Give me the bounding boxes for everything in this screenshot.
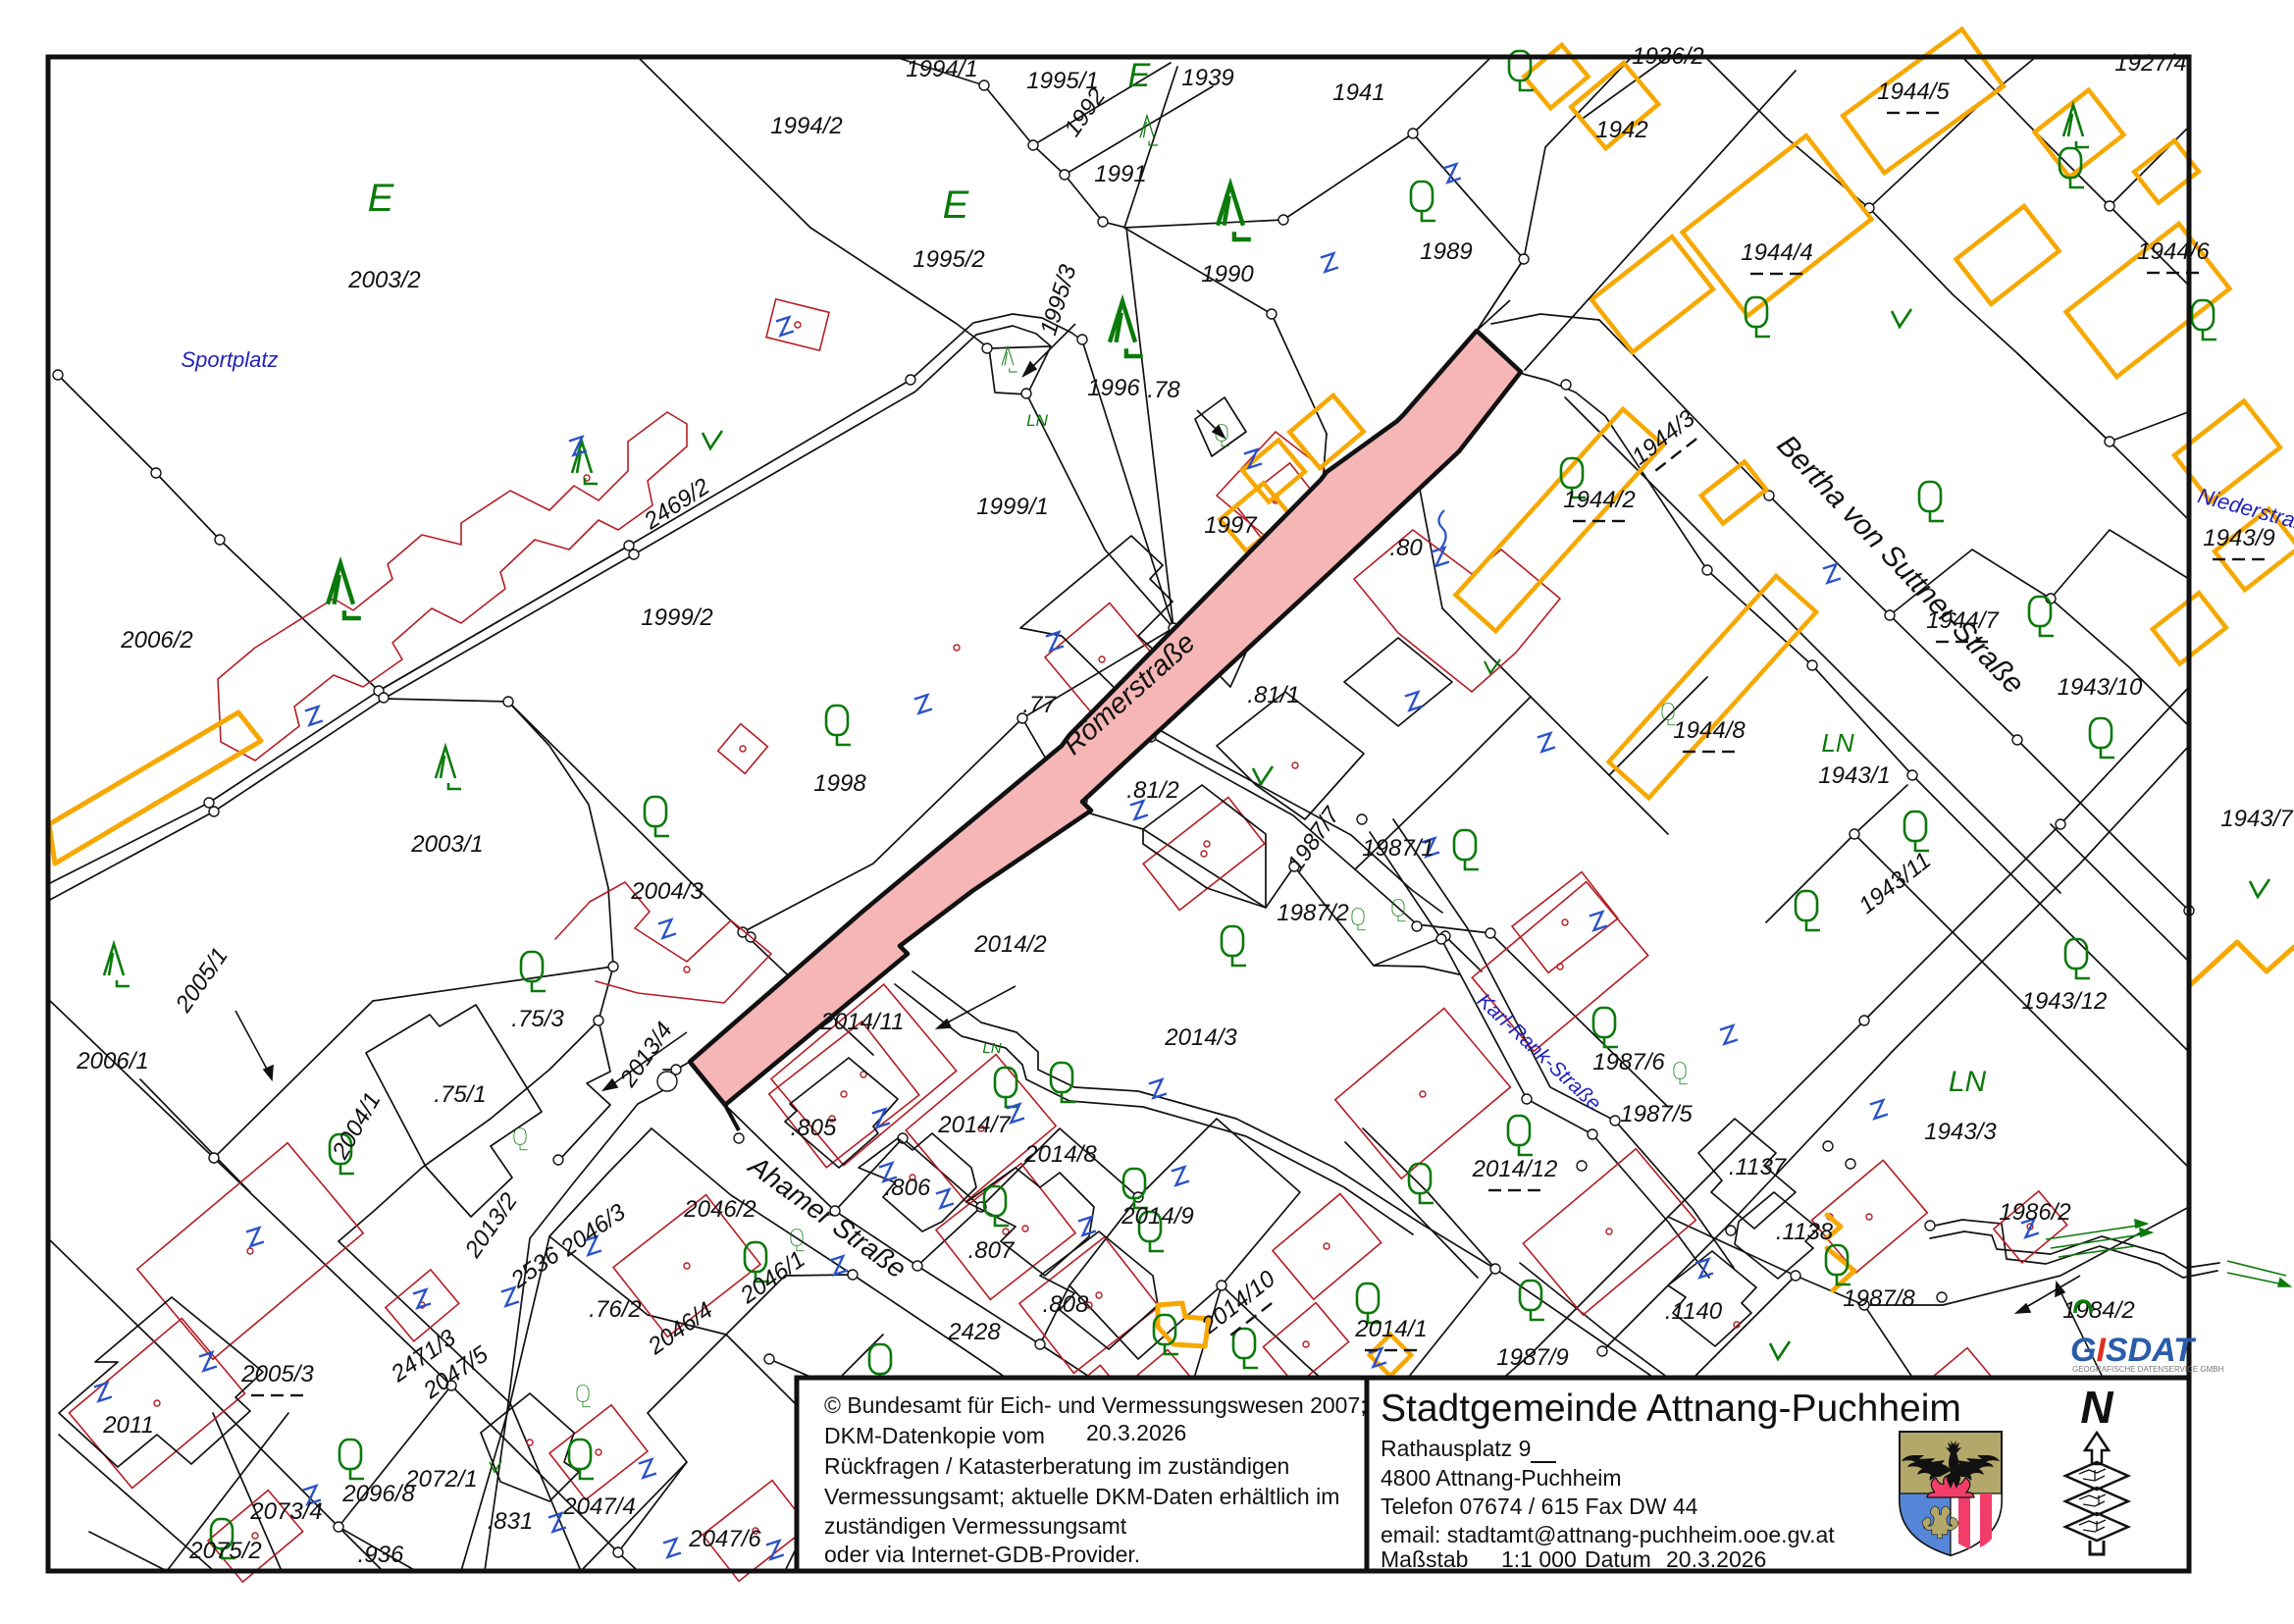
svg-text:2075/2: 2075/2 [188, 1538, 261, 1564]
svg-text:.1138: .1138 [1776, 1219, 1834, 1245]
svg-text:2003/1: 2003/1 [410, 831, 483, 858]
svg-text:1:1 000: 1:1 000 [1501, 1546, 1577, 1572]
svg-text:.807: .807 [968, 1237, 1016, 1264]
svg-text:1994/2: 1994/2 [770, 113, 842, 139]
svg-text:2428: 2428 [947, 1319, 1001, 1345]
svg-text:1989: 1989 [1420, 238, 1472, 265]
svg-text:email: stadtamt@attnang-puchhe: email: stadtamt@attnang-puchheim.ooe.gv.… [1381, 1522, 1835, 1547]
svg-text:LN: LN [1026, 411, 1048, 430]
svg-text:© Bundesamt für Eich- und Verm: © Bundesamt für Eich- und Vermessungswes… [824, 1392, 1367, 1418]
svg-text:2047/4: 2047/4 [562, 1493, 635, 1520]
svg-text:Maßstab: Maßstab [1381, 1546, 1468, 1572]
svg-text:oder via Internet-GDB-Provider: oder via Internet-GDB-Provider. [824, 1542, 1140, 1567]
svg-text:1996: 1996 [1087, 375, 1140, 401]
svg-text:.1140: .1140 [1665, 1298, 1723, 1325]
svg-text:.81/1: .81/1 [1247, 682, 1299, 708]
svg-text:20.3.2026: 20.3.2026 [1666, 1546, 1766, 1572]
svg-text:1991: 1991 [1094, 161, 1146, 187]
svg-text:N: N [2080, 1382, 2113, 1433]
svg-text:1943/10: 1943/10 [2058, 674, 2143, 701]
svg-text:2003/2: 2003/2 [347, 267, 420, 293]
svg-text:E: E [368, 177, 395, 220]
svg-text:1943/7: 1943/7 [2220, 806, 2294, 832]
svg-text:2014/7: 2014/7 [937, 1112, 1012, 1138]
svg-text:.805: .805 [791, 1115, 837, 1141]
svg-text:.936: .936 [358, 1542, 404, 1568]
svg-text:1944/2: 1944/2 [1563, 487, 1635, 513]
svg-text:LN: LN [1949, 1066, 1987, 1098]
svg-text:.1137: .1137 [1729, 1154, 1788, 1180]
svg-text:1987/8: 1987/8 [1843, 1285, 1915, 1312]
svg-text:Rückfragen / Katasterberatung: Rückfragen / Katasterberatung im zuständ… [824, 1453, 1289, 1479]
svg-text:2005/3: 2005/3 [240, 1361, 314, 1388]
svg-text:1999/2: 1999/2 [641, 604, 712, 631]
svg-text:Sportplatz: Sportplatz [181, 347, 278, 372]
svg-text:2073/4: 2073/4 [249, 1498, 322, 1525]
svg-text:LN: LN [1821, 728, 1853, 758]
svg-text:2004/3: 2004/3 [630, 878, 704, 905]
svg-text:Vermessungsamt; aktuelle DKM-D: Vermessungsamt; aktuelle DKM-Daten erhäl… [824, 1484, 1339, 1509]
svg-text:Rathausplatz 9: Rathausplatz 9 [1381, 1436, 1531, 1461]
svg-text:1927/4: 1927/4 [2114, 50, 2186, 77]
svg-text:1944/5: 1944/5 [1877, 79, 1950, 105]
svg-text:1944/4: 1944/4 [1741, 239, 1812, 266]
svg-text:1997: 1997 [1204, 512, 1258, 539]
svg-text:Telefon 07674 / 615 Fax DW 44: Telefon 07674 / 615 Fax DW 44 [1381, 1493, 1698, 1519]
svg-text:E: E [1128, 57, 1151, 94]
svg-text:.75/3: .75/3 [511, 1006, 564, 1032]
svg-text:1939: 1939 [1181, 65, 1233, 91]
svg-text:1994/1: 1994/1 [906, 56, 977, 82]
svg-text:.77: .77 [1022, 692, 1057, 718]
svg-text:2014/12: 2014/12 [1472, 1156, 1558, 1182]
svg-text:2014/3: 2014/3 [1164, 1024, 1237, 1051]
svg-text:2006/1: 2006/1 [76, 1048, 148, 1074]
svg-text:Datum: Datum [1585, 1546, 1651, 1572]
svg-text:1941: 1941 [1332, 79, 1384, 106]
svg-text:Stadtgemeinde Attnang-Puchheim: Stadtgemeinde Attnang-Puchheim [1381, 1388, 1961, 1430]
svg-text:1986/2: 1986/2 [1999, 1199, 2070, 1226]
svg-text:1998: 1998 [813, 770, 866, 797]
svg-text:1943/1: 1943/1 [1818, 762, 1890, 789]
svg-text:2011: 2011 [102, 1412, 154, 1439]
svg-text:.76/2: .76/2 [589, 1296, 641, 1323]
svg-text:2014/9: 2014/9 [1121, 1203, 1193, 1230]
svg-text:2047/6: 2047/6 [688, 1526, 761, 1552]
svg-text:1990: 1990 [1201, 261, 1254, 288]
svg-text:.808: .808 [1043, 1291, 1089, 1318]
svg-text:1943/9: 1943/9 [2203, 525, 2274, 551]
svg-text:1944/6: 1944/6 [2137, 238, 2210, 265]
svg-text:GISDAT: GISDAT [2070, 1332, 2197, 1369]
svg-text:.81/2: .81/2 [1126, 777, 1178, 804]
svg-text:1987/6: 1987/6 [1592, 1049, 1665, 1075]
svg-text:2014/2: 2014/2 [973, 931, 1046, 958]
svg-text:1943/3: 1943/3 [1924, 1119, 1997, 1145]
svg-text:.80: .80 [1389, 535, 1423, 561]
svg-text:20.3.2026: 20.3.2026 [1086, 1420, 1186, 1445]
svg-text:2014/1: 2014/1 [1354, 1316, 1427, 1342]
svg-text:LN: LN [982, 1040, 1001, 1057]
svg-text:1999/1: 1999/1 [976, 494, 1048, 520]
svg-text:1987/2: 1987/2 [1277, 900, 1348, 926]
svg-text:2006/2: 2006/2 [120, 627, 192, 654]
svg-text:2014/11: 2014/11 [820, 1009, 905, 1035]
svg-text:.75/1: .75/1 [434, 1081, 486, 1108]
svg-text:1987/5: 1987/5 [1620, 1101, 1693, 1127]
svg-text:E: E [943, 183, 970, 227]
svg-text:2014/8: 2014/8 [1023, 1141, 1097, 1168]
svg-text:4800 Attnang-Puchheim: 4800 Attnang-Puchheim [1381, 1465, 1622, 1491]
svg-text:2072/1: 2072/1 [404, 1466, 477, 1493]
svg-text:GEOGRAFISCHE DATENSERVICE GMBH: GEOGRAFISCHE DATENSERVICE GMBH [2072, 1365, 2224, 1374]
svg-text:1987/1: 1987/1 [1362, 835, 1434, 862]
svg-text:1987/9: 1987/9 [1496, 1344, 1568, 1371]
svg-text:2046/2: 2046/2 [683, 1196, 756, 1223]
svg-text:1943/12: 1943/12 [2022, 988, 2108, 1015]
svg-text:1942: 1942 [1595, 117, 1647, 143]
svg-text:.78: .78 [1147, 377, 1180, 403]
svg-text:.806: .806 [885, 1175, 931, 1201]
svg-text:2096/8: 2096/8 [341, 1481, 415, 1507]
svg-text:DKM-Datenkopie vom: DKM-Datenkopie vom [824, 1423, 1045, 1448]
svg-text:1944/8: 1944/8 [1673, 717, 1746, 744]
svg-text:.831: .831 [488, 1508, 534, 1535]
svg-text:zuständigen Vermessungsamt: zuständigen Vermessungsamt [824, 1513, 1127, 1539]
svg-text:1995/2: 1995/2 [912, 246, 984, 273]
